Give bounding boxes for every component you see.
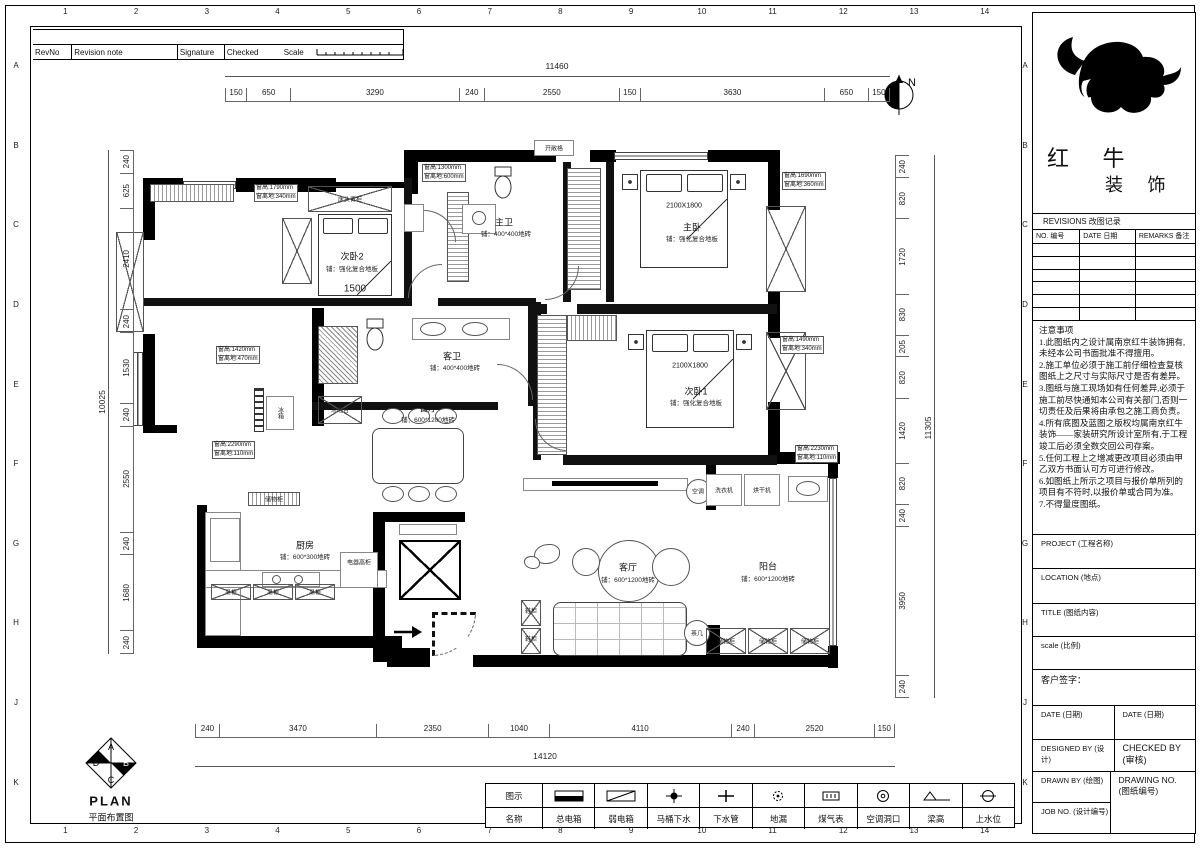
legend-symbol-ac-opening [857,784,909,807]
scale-bar [315,46,403,58]
fridge-label: 冰箱 [276,407,285,419]
window-callout: 窗高:2290mm窗离地:110mm [212,441,255,459]
rug [572,548,600,576]
ruler-num: 11 [737,7,808,21]
window [133,352,143,426]
storage-cabinet-label: 储物柜 [801,637,819,646]
ruler-letter: K [8,742,24,822]
armchair [652,548,690,586]
notes-item: 4.所有底图及蓝图之版权均属南京红牛装饰——家装研究所设计室所有,于工程竣工后必… [1039,418,1189,453]
dimension-line [108,150,109,654]
dim-seg: 240 [120,309,133,332]
field-drawn-by: DRAWN BY (绘图) [1033,772,1110,802]
callout-line: 窗高:2230mm [797,446,836,455]
legend-name: 煤气表 [804,807,856,829]
ruler-num: 4 [242,826,313,840]
shoe-cabinet-label: 鞋柜 [524,637,538,644]
legend-name: 弱电箱 [594,807,646,829]
legend-symbol-low-voltage [594,784,646,807]
revisions-empty-cell [1135,307,1195,320]
drawn-job-left: DRAWN BY (绘图) JOB NO. (设计编号) [1033,772,1110,833]
storage-cabinet-label: 储物柜 [759,637,777,646]
north-label: N [908,77,916,89]
notes-item: 5.任何工程上之增减更改项目必须由甲乙双方书面认可方可进行修改。 [1039,453,1189,476]
appliance-cabinet-label: 电器高柜 [344,561,374,568]
drawing-frame [30,26,1022,824]
partition [577,304,777,314]
room-name-balcony: 阳台 [759,560,777,573]
dim-seg: 240 [896,504,909,526]
notes-section: 注意事项 1.此图纸内之设计属南京红牛装饰拥有,未经本公司书面批准不得擅用。 2… [1033,321,1195,535]
callout-line: 窗高:1790mm [256,185,296,194]
pillow [323,218,353,234]
revision-strip-empty-row [33,30,403,45]
wardrobe [150,184,234,202]
revisions-empty-cell [1079,307,1135,320]
ruler-top: 1234567891011121314 [30,7,1020,21]
field-dates-row: DATE (日期) DATE (日期) [1033,706,1195,740]
dim-seg: 650 [246,88,290,101]
legend-symbol-floor-drain [752,784,804,807]
dim-seg: 1720 [896,218,909,293]
tea-table-label: 茶几 [691,629,703,638]
tv [552,481,658,486]
toilet-icon [492,166,514,200]
ruler-num: 14 [949,7,1020,21]
pillow [646,174,682,192]
window-callout: 窗高:2230mm窗离地:110mm [795,445,838,463]
elevator-wall [373,512,465,522]
dim-seg: 2550 [120,426,133,532]
room-floor-dining: 铺：600*1200地砖 [401,414,455,424]
ruler-letter: E [8,344,24,424]
burner [294,575,303,584]
ruler-num: 7 [454,7,525,21]
room-name-kitchen: 厨房 [296,539,314,552]
washer-label: 洗衣机 [715,486,733,495]
field-title: TITLE (图纸内容) [1033,604,1195,637]
revisions-col-no: NO. 编号 [1033,230,1079,243]
dim-seg: 650 [824,88,868,101]
dim-seg: 3290 [290,88,459,101]
sofa [553,602,687,656]
dim-seg: 820 [896,356,909,397]
ruler-letter: H [8,583,24,663]
ruler-letter: G [8,504,24,584]
window-callout: 窗高:1420mm窗离地:470mm [216,346,260,364]
revno-header: RevNo [33,45,72,59]
room-floor-bedroom2: 铺：强化复合地板 [326,263,378,273]
field-date-left: DATE (日期) [1033,706,1114,739]
dim-seg: 150 [225,88,246,101]
dimension-chain-left: 240 625 2410 240 1530 240 2550 240 1680 … [120,150,134,654]
callout-line: 窗高:1490mm [782,337,822,346]
callout-line: 窗离地:110mm [797,455,836,463]
notes-item: 6.如图纸上所示之项目与报价单所列的项目有不符时,以报价单或合同为准。 [1039,476,1189,499]
legend-name: 上水位 [962,807,1014,829]
dim-seg: 1680 [120,554,133,630]
drawing-no-line1: DRAWING NO. [1119,775,1196,785]
dimension-line [225,76,890,77]
pillow [358,218,388,234]
revisions-empty-cell [1079,256,1135,269]
callout-line: 窗高:1300mm [424,165,464,174]
dim-seg: 820 [896,463,909,504]
ruler-num: 4 [242,7,313,21]
pillow [652,334,688,352]
room-floor-master-bedroom: 铺：强化复合地板 [666,233,718,243]
ruler-num: 2 [101,7,172,21]
ruler-letter: B [8,106,24,186]
plan-title-en: PLAN [89,794,132,809]
dim-seg: 1530 [120,332,133,403]
wall [473,655,838,667]
plan-title-cn: 平面布置图 [88,811,133,824]
revisions-empty-cell [1079,269,1135,282]
revision-note-header: Revision note [72,45,178,59]
bed-size-label: 2100X1800 [666,203,702,210]
revisions-empty-cell [1079,294,1135,307]
revisions-title: REVISIONS 改图记录 [1033,214,1195,230]
hanging-cabinet-label: 吊柜 [225,588,237,597]
dim-seg: 3630 [640,88,824,101]
basin [420,322,446,336]
legend-symbol-beam-height [909,784,961,807]
dimension-chain-top: 150 650 3290 240 2550 150 3630 650 150 [225,88,890,102]
drawing-no-line2: (图纸编号) [1119,785,1196,797]
callout-line: 窗高:1690mm [784,173,824,182]
brand-name-line2: 装 饰 [1105,171,1176,197]
nightstand [736,334,752,350]
shower-area [318,326,358,384]
ruler-num: 3 [171,7,242,21]
dim-seg: 2350 [376,724,488,737]
callout-line: 窗高:1420mm [218,347,258,356]
partition [606,162,614,302]
window-callout: 窗高:1790mm窗离地:340mm [254,184,298,202]
wardrobe [567,315,617,341]
nightstand [628,334,644,350]
dim-seg: 820 [896,177,909,218]
dim-seg: 240 [896,155,909,177]
revisions-empty-cell [1033,281,1079,294]
storage-cabinet-label: 储物柜 [717,637,735,646]
room-floor-bedroom1: 铺：强化复合地板 [670,397,722,407]
room-name-dining: 餐厅 [419,402,437,415]
checked-header: Checked [225,45,282,59]
appliance-cabinet [340,552,378,588]
dim-overall-bottom: 14120 [533,751,557,761]
revisions-empty-cell [1135,256,1195,269]
dimension-line [195,766,895,767]
callout-line: 窗离地:360mm [784,182,824,190]
basin [462,322,488,336]
elevator-door [399,524,457,535]
notes-item: 7.不得量度图纸。 [1039,499,1189,511]
dimension-line [934,155,935,698]
stamp-letter-d: D [93,758,100,768]
basin [796,481,820,496]
revisions-table: NO. 编号 DATE 日期 REMARKS 备注 [1033,230,1195,321]
field-job-no: JOB NO. (设计编号) [1033,802,1110,833]
stamp-letter-c: C [108,775,115,785]
callout-line: 窗离地:110mm [214,451,253,459]
signature-header: Signature [178,45,225,59]
dim-seg: 205 [896,335,909,356]
drain [472,211,486,225]
ruler-letter: C [8,185,24,265]
revisions-empty-cell [1033,294,1079,307]
window-callout: 窗高:1490mm窗离地:340mm [780,336,824,354]
headboard-cabinet-label: 床头背柜 [338,195,362,204]
wall [768,150,780,210]
room-floor-guest-bath: 铺：400*400地砖 [430,362,480,372]
checked-by-line2: (审核) [1123,753,1196,766]
brand-logo-box: 红 牛 装 饰 [1033,13,1195,214]
desk [404,204,424,232]
window-seat [282,218,312,284]
hanging-cabinet-label: 吊柜 [267,588,279,597]
field-designed-row: DESIGNED BY (设计) CHECKED BY (审核) [1033,740,1195,772]
callout-line: 窗离地:600mm [424,174,464,182]
window [614,152,708,160]
callout-line: 窗高:2290mm [214,442,253,451]
chair [408,486,430,502]
revisions-col-date: DATE 日期 [1079,230,1135,243]
revisions-empty-cell [1079,281,1135,294]
interior-dimension: 1500 [344,284,366,295]
checked-by-line1: CHECKED BY [1123,743,1196,753]
wall [373,648,430,662]
dim-seg: 3950 [896,526,909,674]
revisions-empty-cell [1135,243,1195,256]
stamp-letter-b: B [123,758,129,768]
window-callout: 窗高:1690mm窗离地:360mm [782,172,826,190]
field-client-signature: 客户签字： [1033,670,1195,706]
legend-symbol-water-supply [962,784,1014,807]
orientation-stamp-icon: A D C B [84,736,138,790]
dimension-chain-right: 240 820 1720 830 205 820 1420 820 240 39… [895,155,909,698]
ruler-num: 5 [313,7,384,21]
room-floor-master-bath: 铺：400*400地砖 [481,228,531,238]
revisions-empty-cell [1079,243,1135,256]
revisions-empty-cell [1033,243,1079,256]
field-scale: scale (比例) [1033,637,1195,670]
dimension-chain-bottom: 240 3470 2350 1040 4110 240 2520 150 [195,724,895,738]
legend-symbol-gas-meter [804,784,856,807]
dim-overall-left: 10025 [97,390,107,414]
room-name-guest-bath: 客卫 [443,350,461,363]
field-drawn-job-row: DRAWN BY (绘图) JOB NO. (设计编号) DRAWING NO.… [1033,772,1195,833]
legend-symbol-main-power [542,784,594,807]
wall [143,334,155,428]
wall [143,425,177,433]
toilet-icon [364,318,386,352]
nightstand [622,174,638,190]
dim-seg: 240 [731,724,755,737]
field-project: PROJECT (工程名称) [1033,535,1195,569]
bed [646,330,734,428]
elevator-shaft [399,540,461,600]
window [829,478,837,646]
dim-seg: 240 [120,150,133,173]
room-floor-kitchen: 铺：600*300地砖 [280,551,330,561]
dim-seg: 2410 [120,208,133,309]
room-name-bedroom1: 次卧1 [684,385,707,398]
dim-seg: 2520 [754,724,873,737]
brick-wall [254,388,264,432]
dim-overall-right: 11305 [923,416,933,439]
room-name-bedroom2: 次卧2 [340,250,363,263]
revisions-empty-cell [1135,281,1195,294]
field-date-right: DATE (日期) [1114,706,1196,739]
ruler-num: 6 [384,826,455,840]
revisions-empty-cell [1033,269,1079,282]
revisions-empty-cell [1033,256,1079,269]
kitchen-sink [210,518,240,562]
room-name-master-bath: 主卫 [495,216,513,229]
stamp-letter-a: A [108,742,114,752]
callout-line: 窗离地:340mm [782,346,822,354]
field-checked-by: CHECKED BY (审核) [1114,740,1196,771]
revisions-empty-cell [1135,294,1195,307]
wall [590,150,616,162]
legend-name: 总电箱 [542,807,594,829]
dryer-label: 烘干机 [753,486,771,495]
title-block: 红 牛 装 饰 REVISIONS 改图记录 NO. 编号 DATE 日期 RE… [1032,12,1196,834]
partition [438,298,536,306]
ruler-num: 13 [879,7,950,21]
ruler-letter: D [8,265,24,345]
legend-name: 马桶下水 [647,807,699,829]
scale-header: Scale [282,45,315,59]
dim-seg: 240 [195,724,219,737]
dim-seg: 240 [120,532,133,555]
burner [272,575,281,584]
notes-item: 2.施工单位必须于施工前仔细检查复核图纸上之尺寸与实际尺寸是否有差异。 [1039,360,1189,383]
ruler-num: 8 [525,7,596,21]
bull-logo-icon [1039,21,1189,141]
ruler-num: 3 [171,826,242,840]
floorplan-sheet: { "sheet": { "numbers": ["1","2","3","4"… [0,0,1200,848]
ruler-num: 2 [101,826,172,840]
nightstand [730,174,746,190]
ruler-num: 12 [808,7,879,21]
ruler-num: 1 [30,7,101,21]
notes-title: 注意事项 [1039,325,1189,337]
ruler-left: ABCDEFGHJK [8,26,24,822]
dim-seg: 830 [896,294,909,336]
ruler-letter: A [8,26,24,106]
ruler-num: 10 [666,7,737,21]
bed [640,170,728,268]
dining-table [372,428,464,484]
ruler-num: 6 [384,7,455,21]
legend-table: 图示 名称 总电箱 弱电箱 马桶下水 下水管 地漏 煤气表 空调洞口 梁高 上水… [485,783,1015,828]
shoe-cabinet-label: 鞋柜 [524,609,538,616]
plant [524,556,540,569]
dim-seg: 240 [120,630,133,654]
legend-symbol-toilet-drain [647,784,699,807]
room-floor-living: 铺：600*1200地砖 [601,574,655,584]
wall [828,462,838,478]
dim-seg: 240 [459,88,484,101]
field-drawing-no: DRAWING NO. (图纸编号) [1110,772,1196,833]
dim-seg: 4110 [549,724,731,737]
pillow [687,174,723,192]
open-shelf-label: 开敞格 [545,144,563,153]
dim-seg: 240 [120,403,133,426]
dim-seg: 150 [874,724,895,737]
room-name-master-bedroom: 主卧 [683,221,701,234]
legend-name: 地漏 [752,807,804,829]
dim-seg: 2550 [484,88,619,101]
partition [143,298,410,306]
brand-name-line1: 红 牛 [1047,141,1139,173]
dim-overall-top: 11460 [545,61,568,71]
legend-symbol-header: 图示 [486,784,542,807]
notes-item: 1.此图纸内之设计属南京红牛装饰拥有,未经本公司书面批准不得擅用。 [1039,337,1189,360]
ruler-num: 1 [30,826,101,840]
field-location: LOCATION (地点) [1033,569,1195,604]
dim-seg: 1040 [488,724,548,737]
room-name-living: 客厅 [619,561,637,574]
legend-name-header: 名称 [486,807,542,829]
ruler-letter: F [8,424,24,504]
entry-arrow-icon [394,626,422,638]
ruler-num: 9 [596,7,667,21]
dim-seg: 150 [868,88,890,101]
ruler-num: 5 [313,826,384,840]
callout-line: 窗离地:470mm [218,356,258,364]
bar-counter-label: 木吧台 [331,406,349,415]
bed-size-label: 2100X1800 [672,363,708,370]
revisions-empty-cell [1135,269,1195,282]
ruler-letter: J [8,663,24,743]
wall [197,636,389,648]
window-callout: 窗高:1300mm窗离地:600mm [422,164,466,182]
legend-name: 梁高 [909,807,961,829]
dim-seg: 1420 [896,398,909,463]
partition [563,455,777,465]
pillow [693,334,729,352]
chair [382,486,404,502]
field-designed-by: DESIGNED BY (设计) [1033,740,1114,771]
revisions-empty-cell [1033,307,1079,320]
revision-strip: RevNo Revision note Signature Checked Sc… [33,29,404,60]
chair [435,486,457,502]
dim-seg: 625 [120,173,133,209]
room-floor-balcony: 铺：600*1200地砖 [741,573,795,583]
ac-label: 空调 [692,487,704,496]
dim-seg: 240 [896,675,909,698]
legend-name: 空调洞口 [857,807,909,829]
legend-symbol-drain-pipe [699,784,751,807]
hanging-cabinet-label: 吊柜 [309,588,321,597]
callout-line: 窗离地:340mm [256,194,296,202]
dim-seg: 150 [619,88,640,101]
legend-name: 下水管 [699,807,751,829]
bay-window [766,206,806,292]
revisions-col-remarks: REMARKS 备注 [1135,230,1195,243]
storage-cabinet-label: 储物柜 [265,495,283,504]
notes-item: 3.图纸与施工现场如有任何差异,必须于施工前尽快通知本公司有关部门,否则一切责任… [1039,383,1189,418]
dim-seg: 3470 [219,724,376,737]
